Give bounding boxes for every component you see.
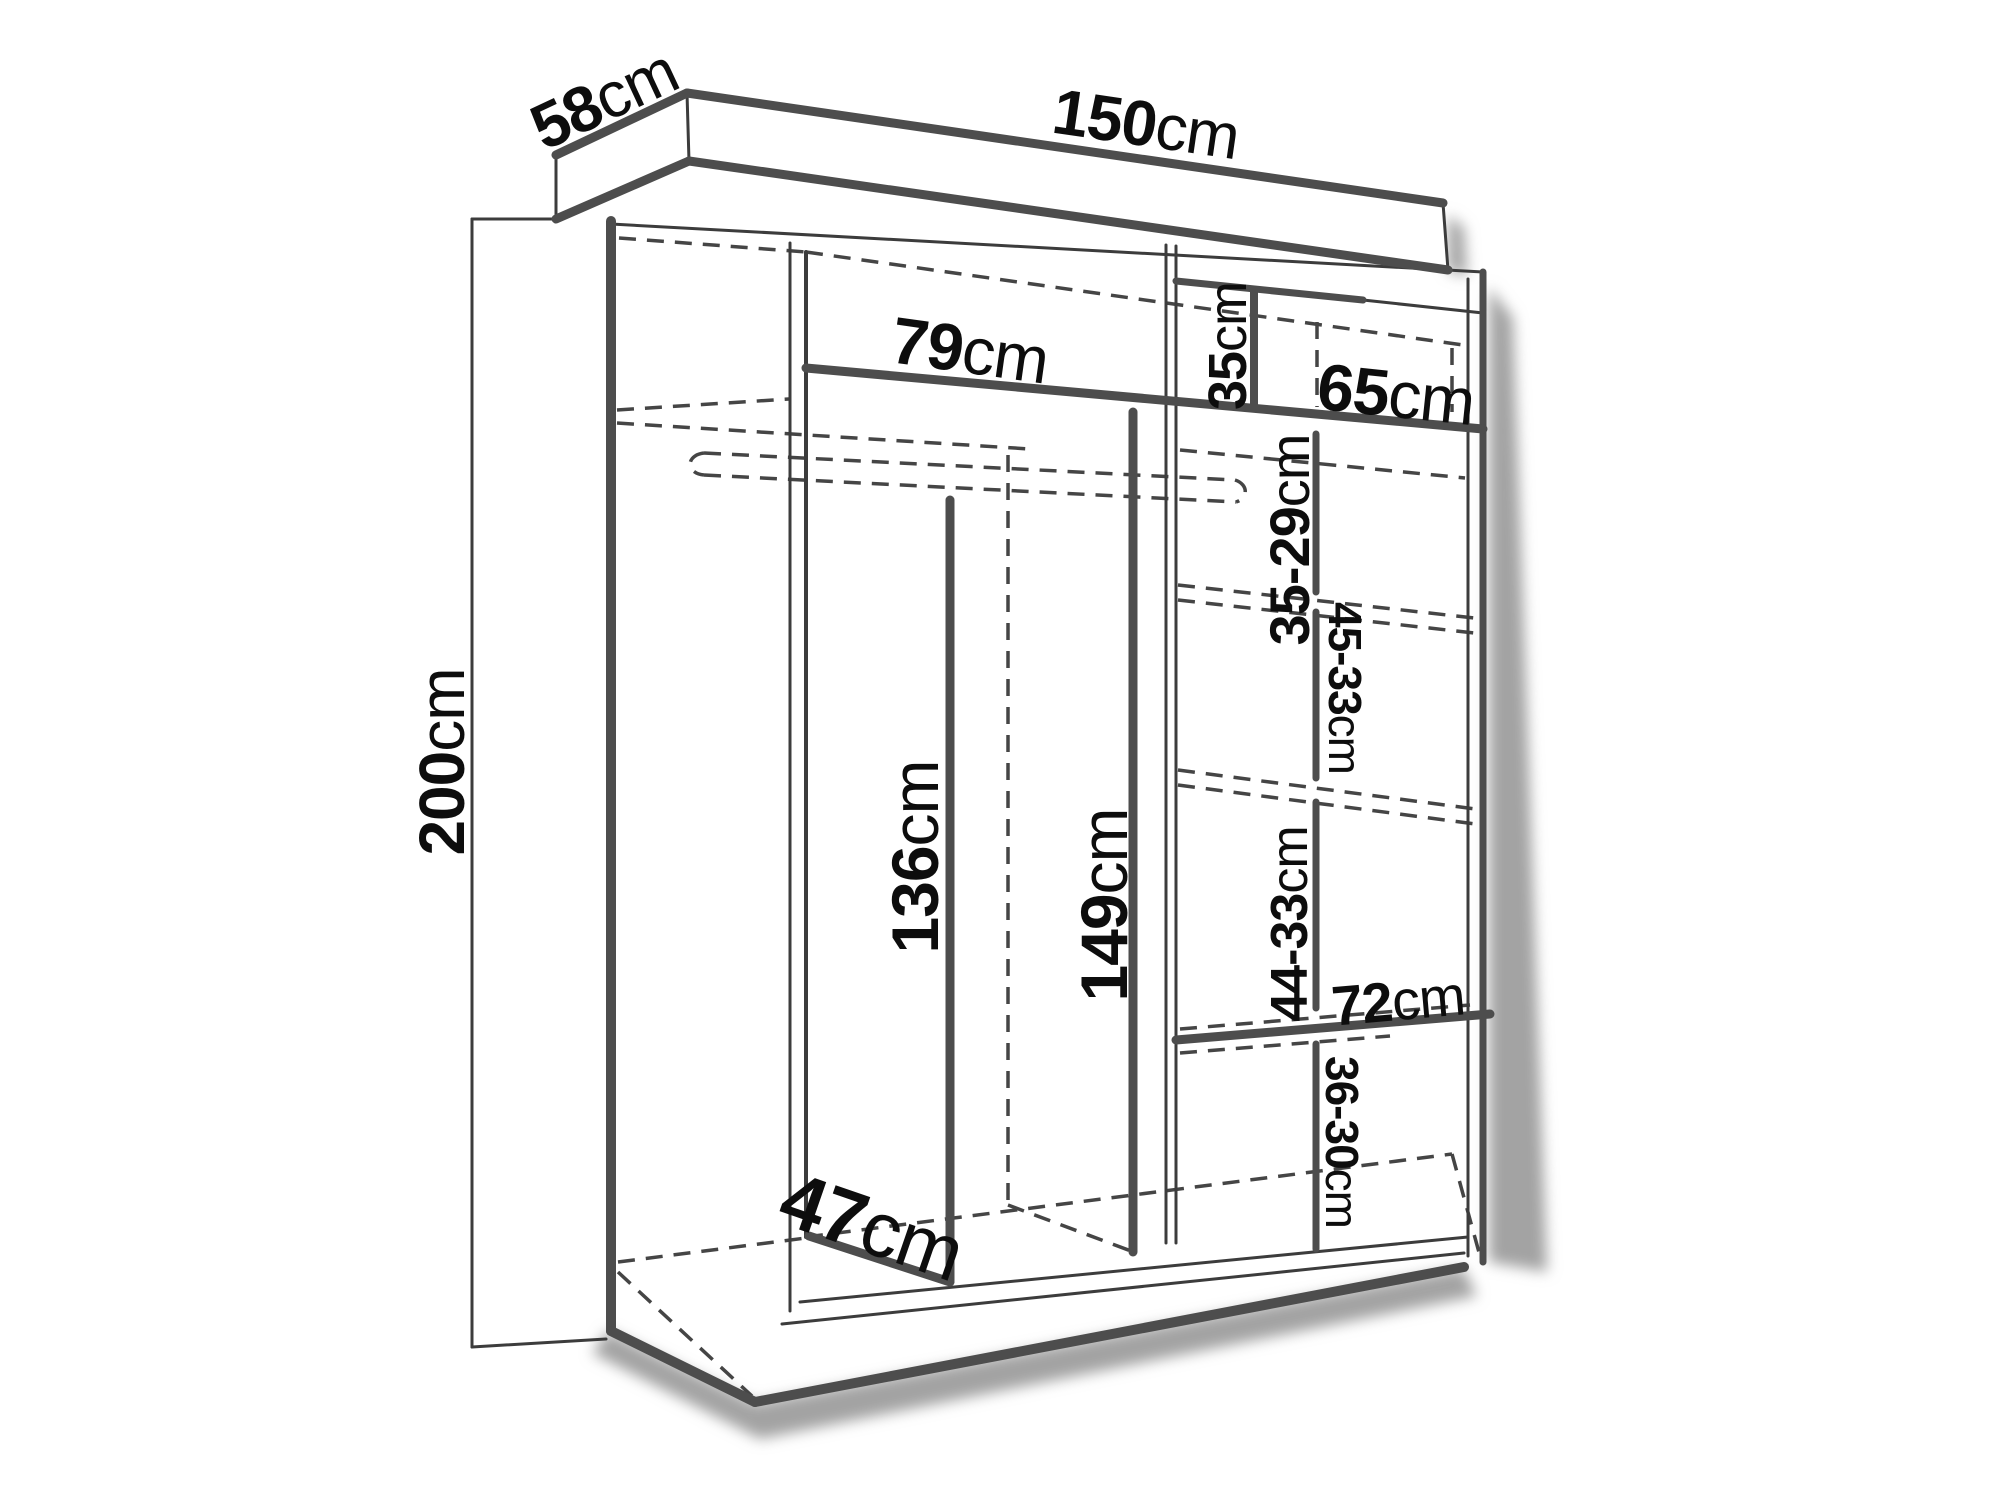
dim-shelf-gap-2-label: 45-33cm (1319, 602, 1371, 774)
right-shelf-back-dashed (1180, 450, 1465, 478)
dim-center-divider-height-label: 149cm (1067, 808, 1141, 1001)
top-panel-corner-edge (687, 93, 689, 161)
left-shelf-back-dashed (617, 423, 1030, 449)
hanging-rail-left-cap (690, 453, 704, 475)
hanging-rail-right-cap (1235, 480, 1245, 502)
dim-shelf-gap-1-label: 35-29cm (1258, 435, 1321, 646)
dim-right-shelf-width-label: 65cm (1314, 349, 1478, 439)
dim-shelf-gap-4-label: 36-30cm (1316, 1056, 1368, 1228)
dim-left-shelf-width-label: 79cm (887, 302, 1053, 397)
dim-height-label: 200cm (406, 668, 478, 855)
dim-lower-shelf-width-label: 72cm (1329, 963, 1467, 1037)
dim-left-divider-height-label: 136cm (878, 760, 952, 953)
diagram-canvas: 58cm 150cm 200cm 79cm 35cm 65cm 35-29cm … (0, 0, 2000, 1499)
left-panel-bottom-dashed-1 (618, 1238, 806, 1262)
hanging-rail-top-dashed (704, 453, 1235, 480)
dim-divider-depth-label: 47cm (769, 1154, 974, 1298)
height-bracket-bottom-tick (472, 1339, 606, 1347)
dim-shelf-gap-3-label: 44-33cm (1261, 826, 1319, 1021)
ceiling-right-edge (1363, 300, 1483, 313)
wardrobe-dimension-diagram: 58cm 150cm 200cm 79cm 35cm 65cm 35-29cm … (0, 0, 2000, 1499)
shadow-right (1489, 287, 1547, 1272)
floor-right-corner-dashed (1452, 1154, 1480, 1256)
dim-top-right-gap-label: 35cm (1198, 282, 1258, 410)
hanging-rail-bottom-dashed (704, 475, 1236, 502)
left-shelf-side-dashed (617, 399, 789, 410)
ceiling-left-dashed (619, 238, 806, 252)
plinth-bottom-edge (755, 1267, 1464, 1402)
center-divider-bottom-dashed (1008, 1205, 1131, 1251)
